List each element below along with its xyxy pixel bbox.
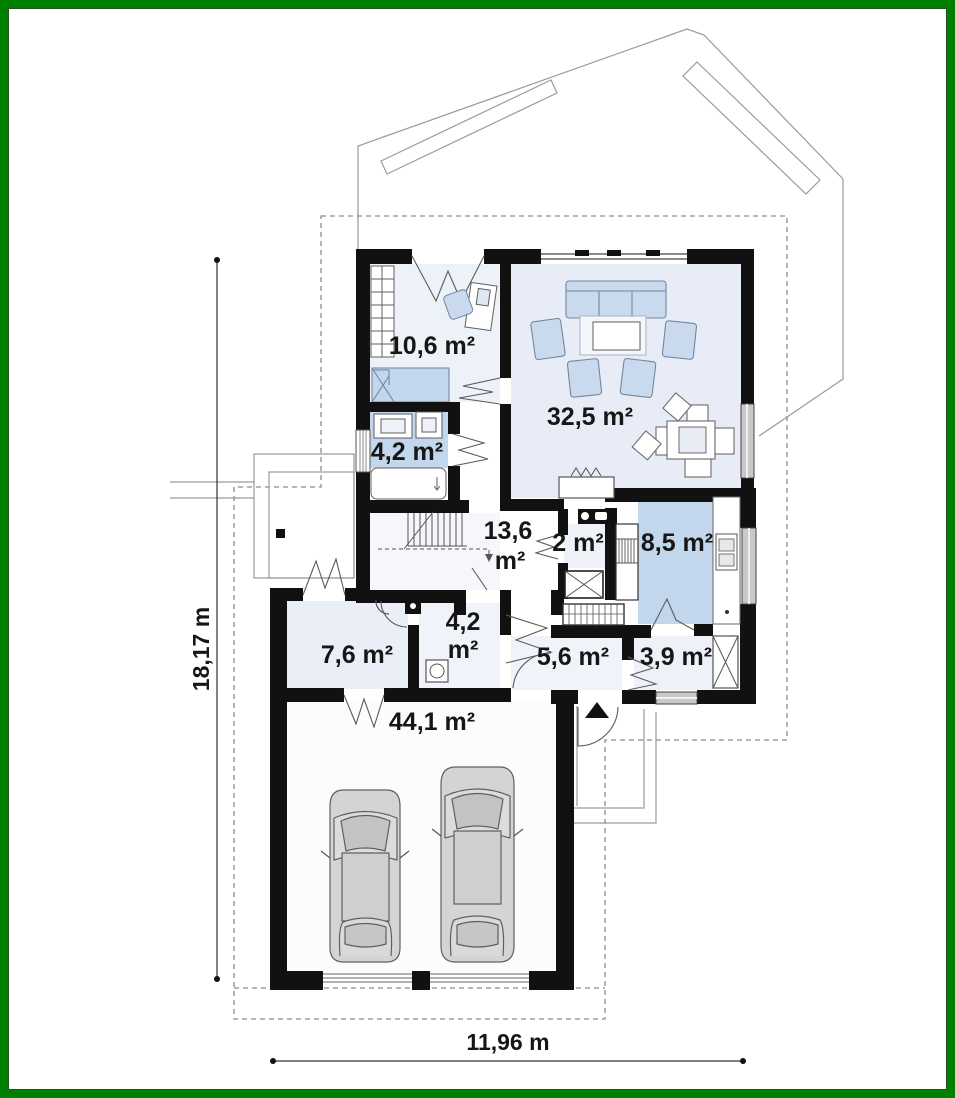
svg-text:4,2: 4,2 xyxy=(446,608,481,636)
svg-text:2 m²: 2 m² xyxy=(552,529,603,557)
svg-text:4,2 m²: 4,2 m² xyxy=(371,438,443,466)
svg-text:44,1 m²: 44,1 m² xyxy=(389,708,475,736)
svg-text:5,6 m²: 5,6 m² xyxy=(537,643,609,671)
svg-text:18,17 m: 18,17 m xyxy=(188,607,214,691)
svg-text:13,6: 13,6 xyxy=(484,517,533,545)
svg-text:m²: m² xyxy=(448,636,479,664)
svg-text:3,9 m²: 3,9 m² xyxy=(640,643,712,671)
svg-text:8,5 m²: 8,5 m² xyxy=(641,529,713,557)
svg-text:32,5 m²: 32,5 m² xyxy=(547,403,633,431)
svg-text:11,96 m: 11,96 m xyxy=(466,1029,549,1055)
svg-text:10,6 m²: 10,6 m² xyxy=(389,332,475,360)
svg-text:m²: m² xyxy=(495,547,526,575)
svg-text:7,6 m²: 7,6 m² xyxy=(321,641,393,669)
